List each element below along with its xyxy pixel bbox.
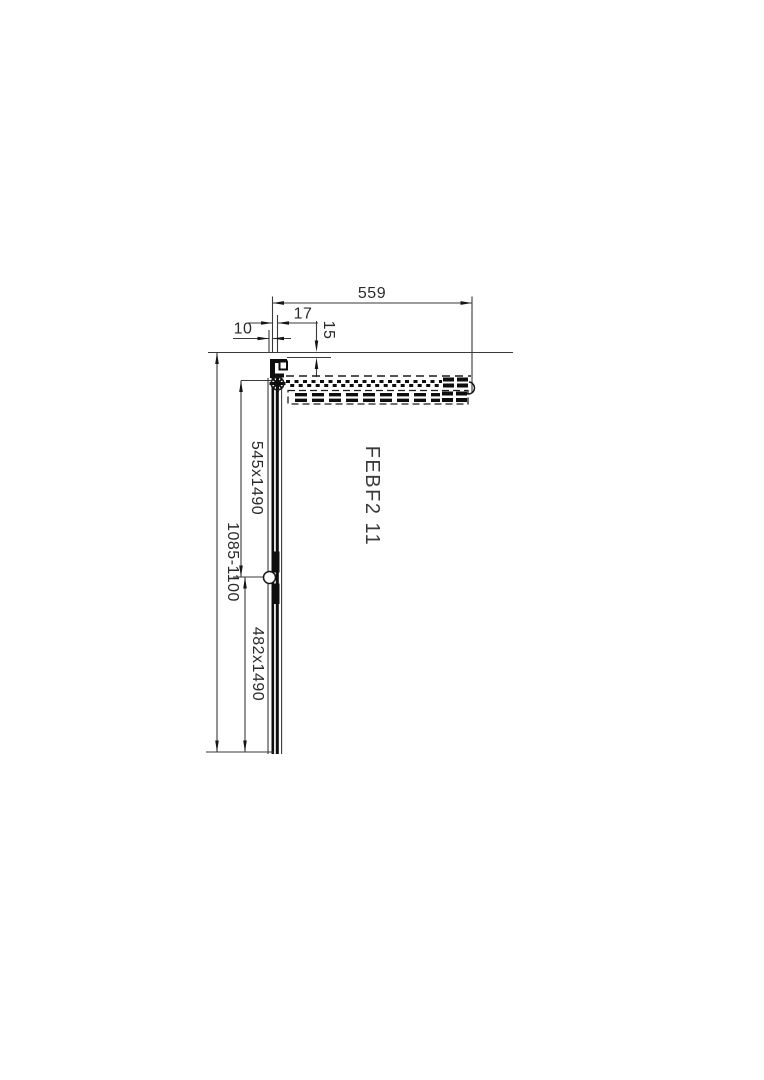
dim-17-label: 17	[294, 306, 313, 323]
arm-end-bracket-upper	[443, 378, 468, 388]
mid-hinge-knob	[264, 572, 276, 584]
reference-line	[208, 353, 513, 358]
mid-hinge-plate-upper	[272, 552, 280, 573]
drawing-page: 559 17 10 15	[0, 0, 764, 1080]
dim-lower-panel-label: 482x1490	[249, 627, 266, 701]
dimension-upper-panel: 545x1490	[239, 381, 271, 578]
arm-end-bracket-lower	[442, 392, 467, 403]
dimension-lower-panel: 482x1490	[233, 577, 276, 752]
dimension-15: 15	[315, 321, 337, 377]
dimension-overall-height: 1085-1100	[215, 353, 241, 753]
technical-drawing: 559 17 10 15	[0, 0, 764, 1080]
dim-10-label: 10	[234, 321, 253, 338]
folding-arm-extended	[286, 376, 474, 394]
dim-upper-panel-label: 545x1490	[248, 441, 265, 515]
corner-bracket	[270, 359, 287, 378]
dimension-10: 10	[233, 321, 291, 353]
dimension-17: 17	[248, 306, 318, 353]
dim-15-label: 15	[320, 321, 337, 340]
mid-hinge-plate-lower	[272, 584, 280, 605]
folding-arm-folded	[288, 391, 468, 405]
dim-559-label: 559	[358, 285, 386, 302]
dim-overall-height-label: 1085-1100	[224, 522, 241, 602]
product-label: FEBF2 11	[361, 446, 383, 547]
